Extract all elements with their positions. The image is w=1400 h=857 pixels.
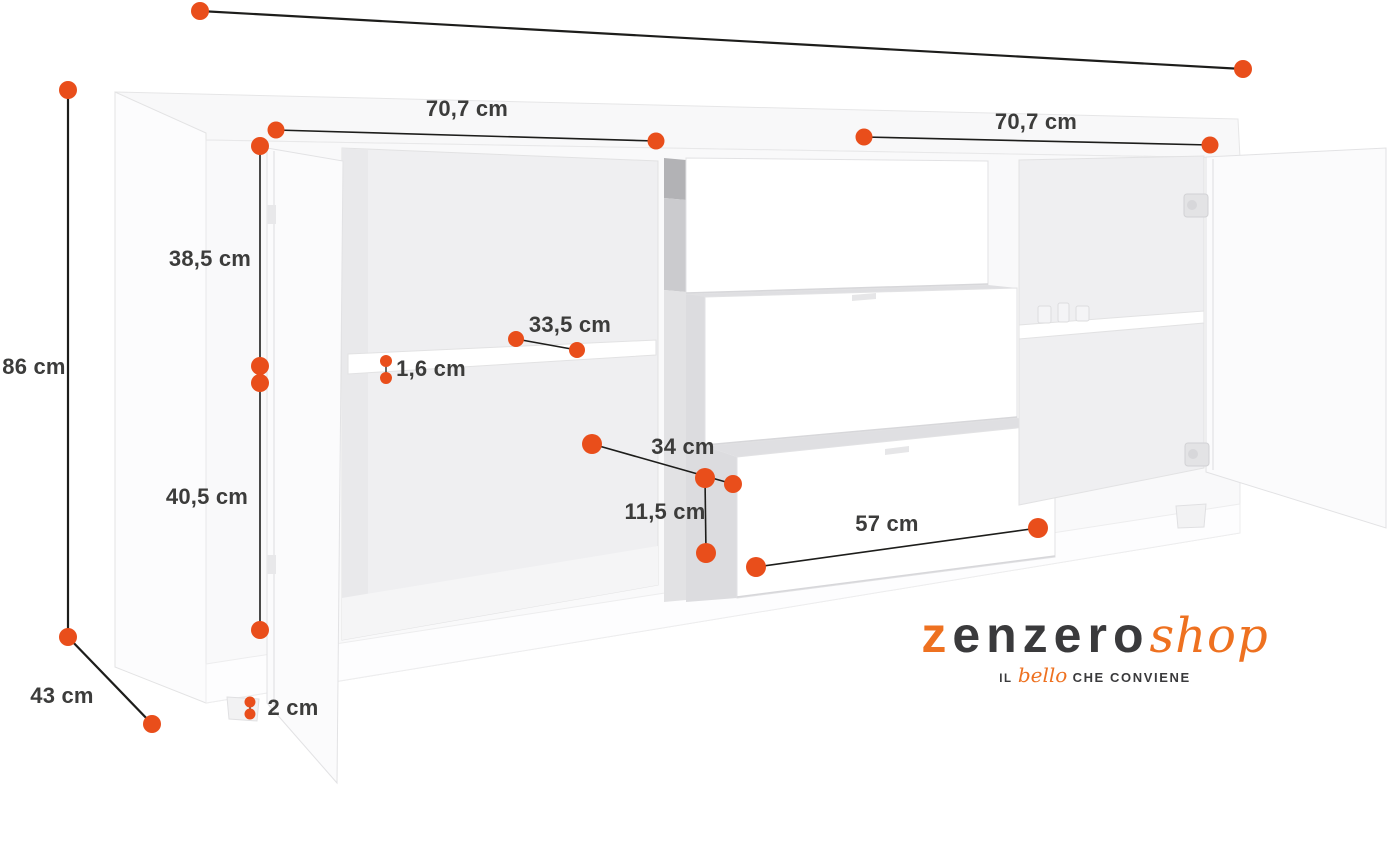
dim-label-foot-height: 2 cm [268,695,319,721]
tagline-prefix: IL [999,673,1012,685]
dim-label-lower-height: 40,5 cm [166,484,248,510]
brand-logo-first-letter: z [921,607,952,663]
brand-logo-rest: enzero [952,607,1149,663]
dim-dot [245,697,256,708]
tagline-suffix: CHE CONVIENE [1073,670,1191,685]
dim-dot [251,374,269,392]
dim-dot [1028,518,1048,538]
dim-dot [268,122,285,139]
gap-shadow-mid [664,198,686,292]
cabinet-left-side-panel [115,92,206,703]
dim-line-total-width [200,11,1243,69]
brand-logo-wordmark: zenzeroshop [921,610,1269,660]
dim-dot [582,434,602,454]
dim-dot [746,557,766,577]
dim-dot [380,355,392,367]
door-hinge-top [1184,194,1208,217]
right-door-panel [1206,148,1386,528]
left-door-hinge-top [267,205,276,224]
dim-dot [59,81,77,99]
drawer-top-front [686,158,988,294]
dim-label-shelf-depth: 33,5 cm [529,312,611,338]
dim-dot [508,331,524,347]
dimension-diagram: 70,7 cm 70,7 cm 86 cm 43 cm 38,5 cm 40,5… [0,0,1400,857]
gap-shadow-dark [664,158,686,200]
glass-3 [1076,306,1089,321]
glass-2 [1058,303,1069,322]
dim-dot [648,133,665,150]
glassware-on-shelf [1038,303,1089,323]
dim-dot [251,621,269,639]
dim-label-total-height: 86 cm [2,354,65,380]
dim-label-upper-height: 38,5 cm [169,246,251,272]
dim-dot [695,468,715,488]
door-hinge-bottom [1185,443,1209,466]
left-compartment [342,148,658,640]
left-door-panel [267,148,343,783]
dim-dot [724,475,742,493]
dim-label-drawer-front-width: 57 cm [855,511,918,537]
brand-logo-suffix: shop [1150,608,1269,664]
left-door-hinge-bottom [267,555,276,574]
dim-dot [1202,137,1219,154]
glass-1 [1038,306,1051,323]
left-door-open [267,148,343,783]
right-door-open [1184,148,1386,528]
tagline-accent-word: bello [1018,663,1067,687]
dim-dot [251,357,269,375]
dim-label-shelf-thickness: 1,6 cm [396,356,466,382]
left-compartment-side-shadow [342,148,368,640]
sideboard-illustration [0,0,1400,857]
dim-dot [59,628,77,646]
foot-right [1176,504,1206,528]
brand-logo: zenzeroshop IL bello CHE CONVIENE [921,610,1269,686]
dim-dot [191,2,209,20]
dim-dot [143,715,161,733]
right-compartment [1019,156,1204,505]
dim-label-depth: 43 cm [30,683,93,709]
dim-dot [696,543,716,563]
dim-dot [245,709,256,720]
drawer-middle-front [705,288,1017,446]
dim-dot [569,342,585,358]
dim-label-width-left: 70,7 cm [426,96,508,122]
dim-label-width-right: 70,7 cm [995,109,1077,135]
dim-dot [251,137,269,155]
brand-logo-tagline: IL bello CHE CONVIENE [921,665,1269,686]
dim-dot [380,372,392,384]
dim-dot [1234,60,1252,78]
dim-label-drawer-inner-height: 11,5 cm [625,499,706,525]
dim-label-drawer-inner-width: 34 cm [651,434,714,460]
dim-dot [856,129,873,146]
